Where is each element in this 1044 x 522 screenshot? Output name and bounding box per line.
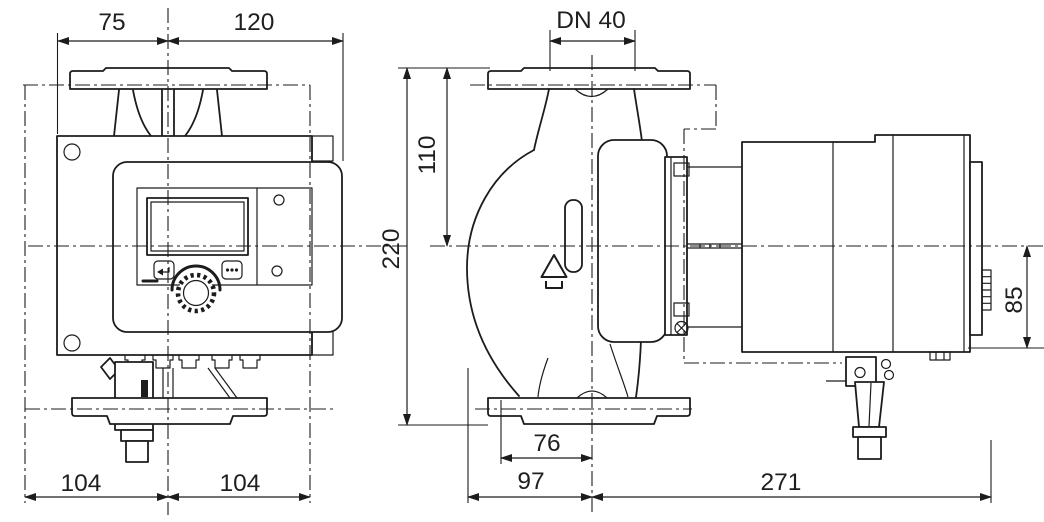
front-bottom-flange: [72, 398, 267, 424]
electronics-module: [742, 135, 991, 360]
front-body-notch-top: [312, 136, 333, 161]
module-ribs: [982, 270, 991, 310]
pump-dimensional-drawing: 75 120 DN 40 220 110 104 104 76 97 271 8…: [0, 0, 1044, 522]
front-body-notch-bottom: [312, 330, 333, 355]
dim-label-85: 85: [1001, 286, 1028, 313]
module-end-cap: [970, 162, 982, 335]
side-neck-left: [534, 89, 549, 150]
dim-label-120: 120: [234, 9, 275, 36]
drawing-canvas: 75 120 DN 40 220 110 104 104 76 97 271 8…: [0, 0, 1044, 522]
side-connector-plug: [826, 357, 894, 459]
vent-tab: [565, 200, 582, 272]
dim-label-dn40: DN 40: [556, 7, 625, 34]
dim-label-75: 75: [98, 9, 125, 36]
dim-label-110: 110: [414, 135, 441, 174]
side-view: [467, 68, 991, 459]
stator-section: [687, 167, 747, 327]
module-bottom-gland: [930, 352, 950, 360]
bearing-housing: [598, 140, 667, 342]
dim-label-104-left: 104: [61, 470, 102, 497]
front-lower-neck: [163, 368, 237, 398]
volute-housing: [467, 140, 667, 397]
side-bottom-flange: [488, 398, 690, 424]
dim-label-220: 220: [378, 229, 405, 270]
side-top-flange: [488, 68, 690, 89]
front-view: [57, 68, 342, 462]
dim-label-271: 271: [761, 469, 802, 496]
dim-label-97: 97: [517, 468, 544, 495]
dots-menu-icon: [226, 268, 238, 271]
flow-direction-icon: [542, 255, 567, 288]
dim-label-76: 76: [533, 430, 560, 457]
dim-label-104-right: 104: [220, 470, 261, 497]
